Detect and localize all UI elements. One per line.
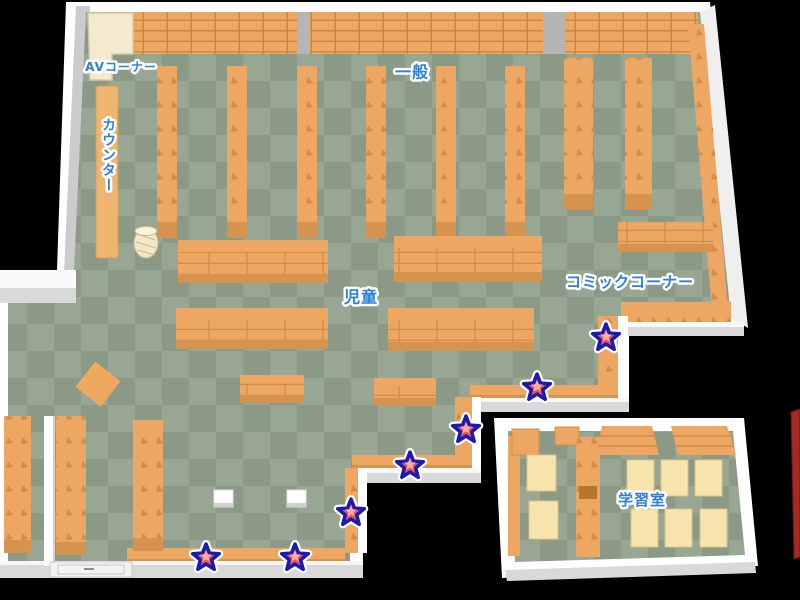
entrance-door bbox=[50, 562, 132, 577]
round-basket bbox=[134, 227, 158, 259]
label-study-room: 学習室 bbox=[618, 491, 666, 509]
label-counter: カウンター bbox=[100, 118, 116, 193]
label-children: 児童 bbox=[343, 288, 378, 307]
label-general: 一般 bbox=[395, 63, 429, 82]
library-floor-map: AVコーナーカウンター一般児童コミックコーナー学習室 bbox=[0, 0, 800, 600]
right-edge-structure bbox=[791, 409, 800, 559]
bottom-left-shelves bbox=[4, 416, 163, 566]
pillar bbox=[297, 12, 310, 54]
label-comic-corner: コミックコーナー bbox=[566, 273, 694, 291]
left-alcove-wall bbox=[0, 270, 76, 303]
label-av-corner: AVコーナー bbox=[85, 60, 157, 74]
wall-shelves-top bbox=[133, 12, 698, 54]
library-map-stage: AVコーナーカウンター一般児童コミックコーナー学習室 bbox=[0, 0, 800, 600]
pillar bbox=[543, 12, 565, 54]
